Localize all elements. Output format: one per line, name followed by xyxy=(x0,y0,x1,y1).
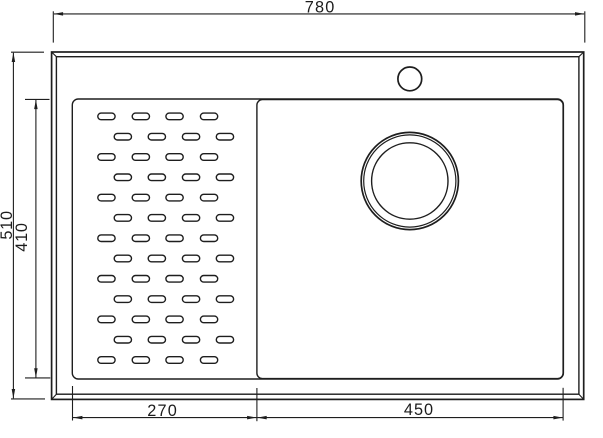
svg-text:410: 410 xyxy=(13,222,31,252)
svg-text:270: 270 xyxy=(147,402,178,420)
svg-text:450: 450 xyxy=(404,401,434,419)
svg-text:780: 780 xyxy=(305,0,336,17)
